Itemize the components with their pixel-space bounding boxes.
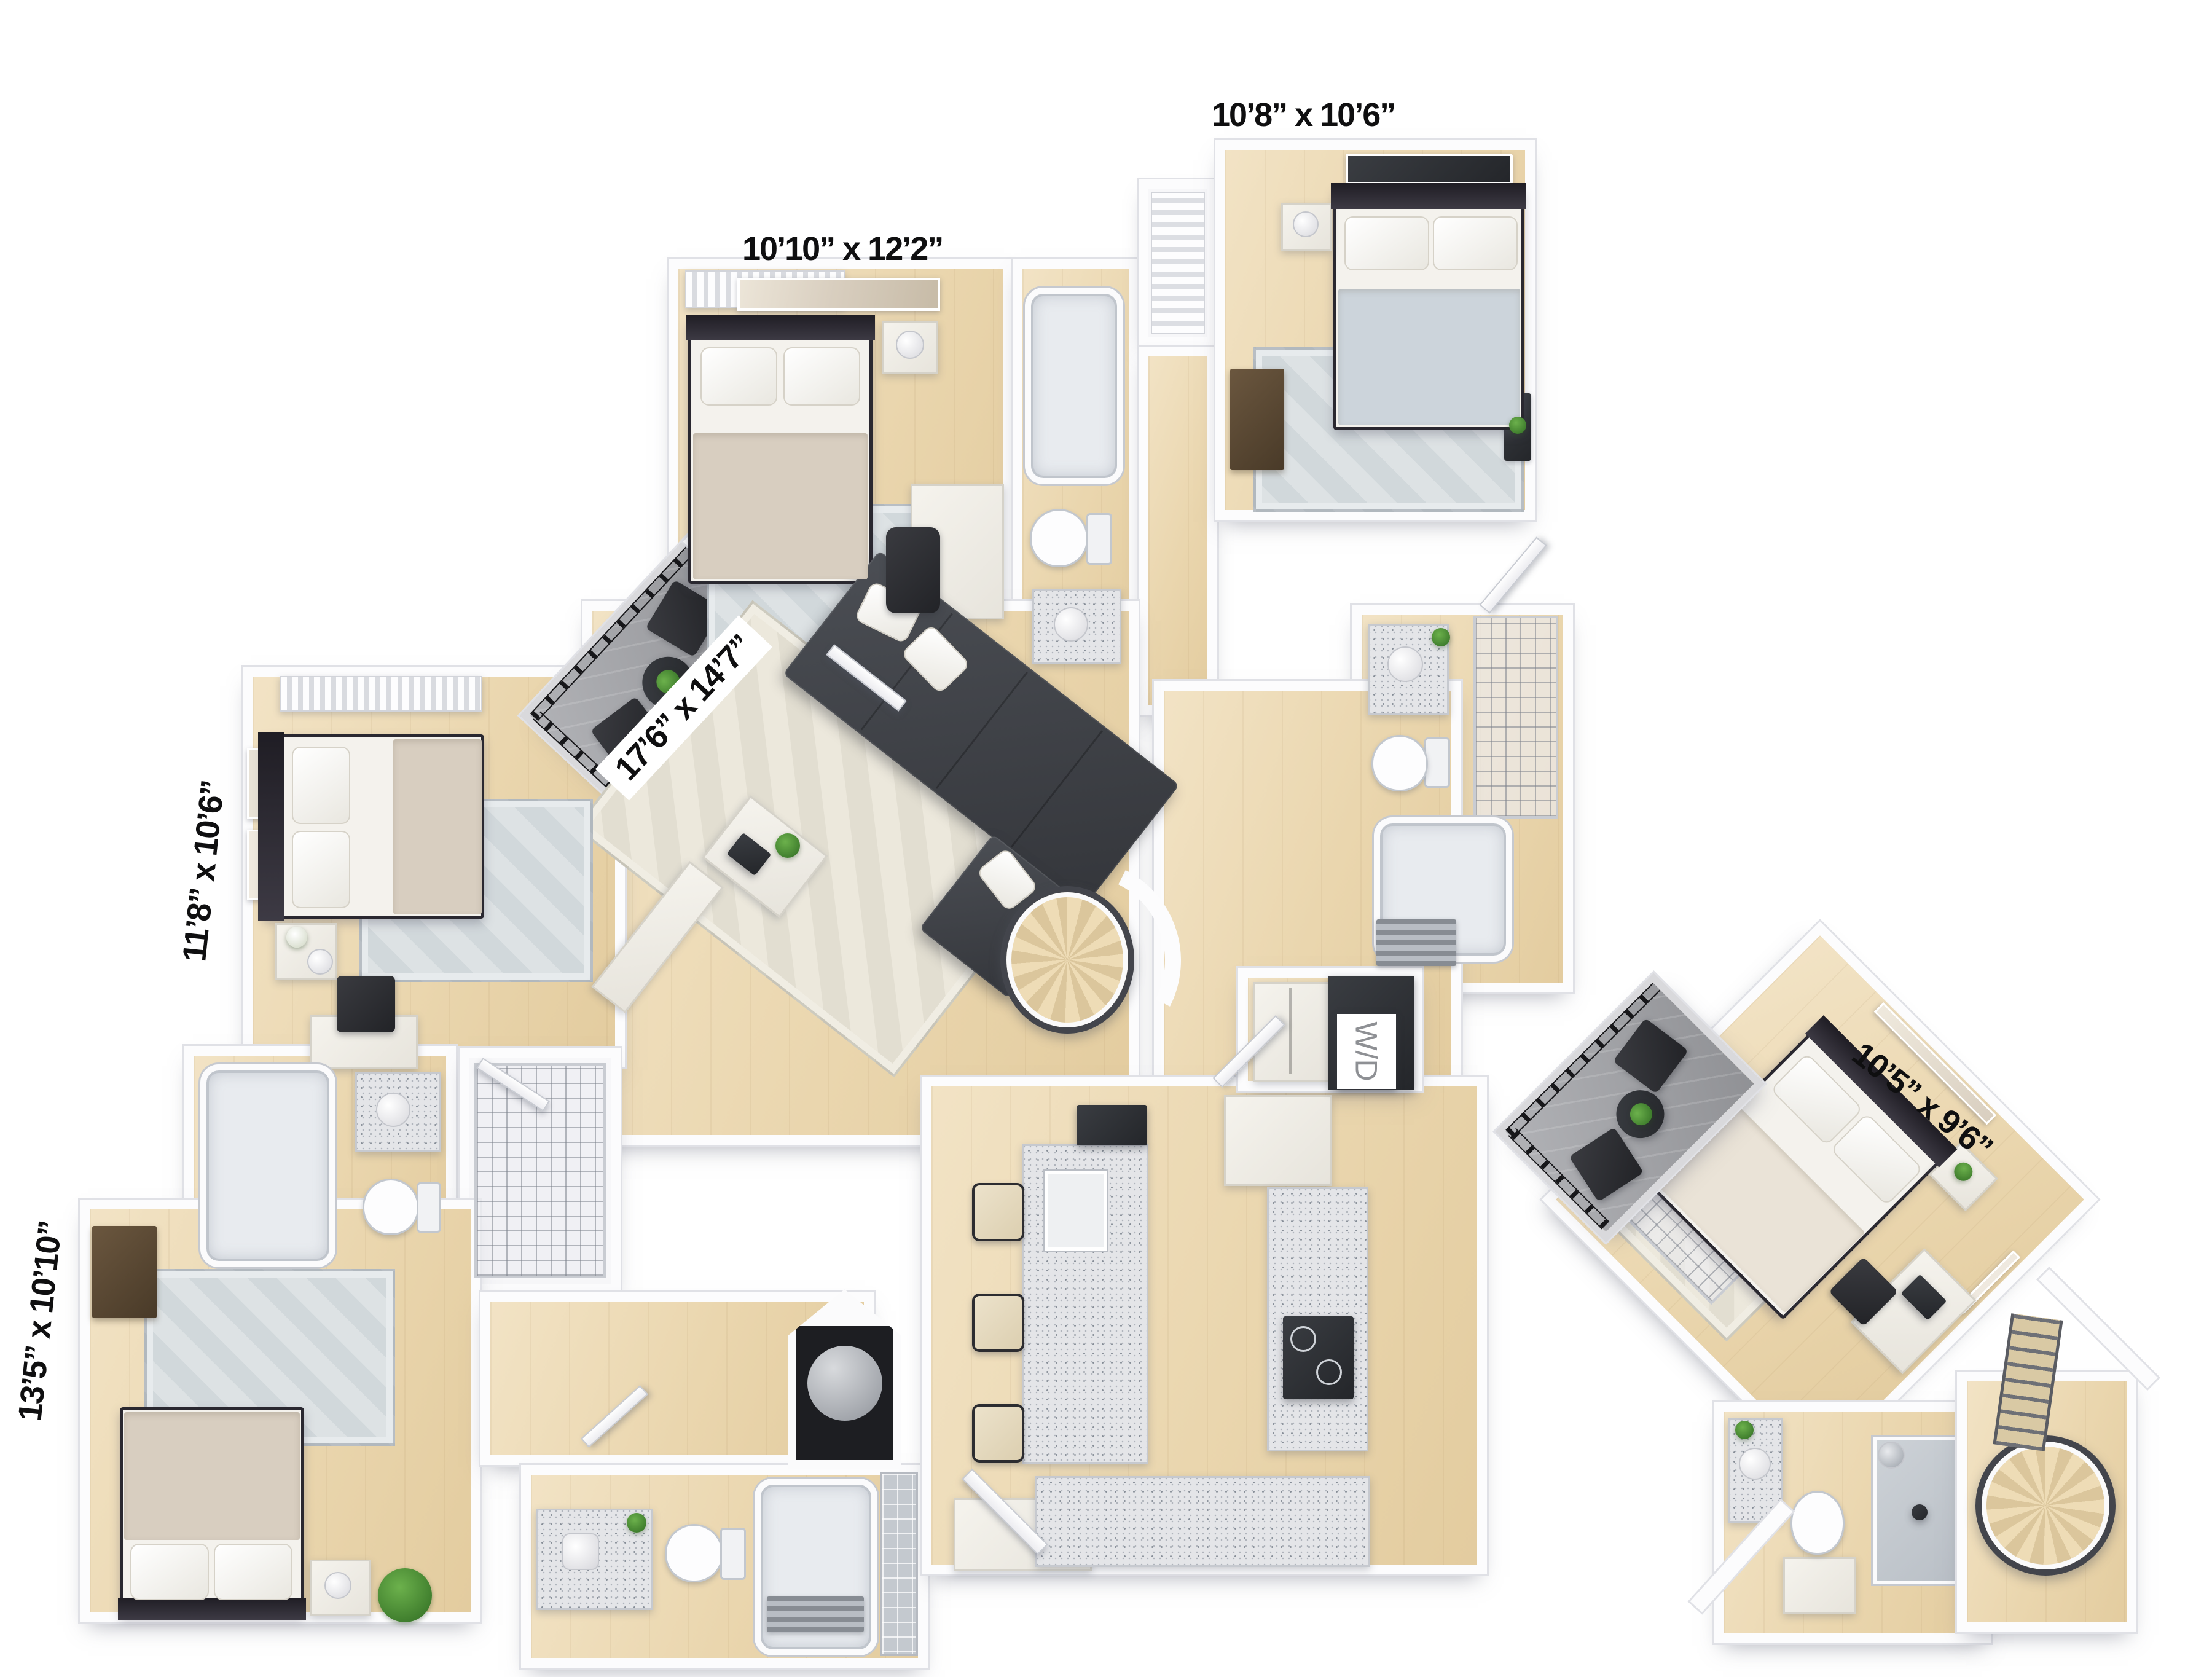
desk-chair-icon <box>886 527 940 613</box>
desk-chair-icon <box>337 976 395 1032</box>
wire-shelving-right <box>1473 616 1558 819</box>
bar-stool <box>972 1404 1024 1463</box>
floor-plan-scene: 10’8” x 10’6” 10’10” x 12’2” 17’6” x 14’… <box>0 0 2212 1677</box>
small-appliance-icon <box>1077 1105 1147 1145</box>
art-plant-icon <box>1509 417 1526 434</box>
stove-burner-icon <box>1316 1359 1342 1385</box>
headboard <box>686 315 875 340</box>
closet-sliding-doors <box>1151 192 1205 334</box>
bar-stool <box>972 1294 1024 1352</box>
wall-art-marble <box>737 278 940 311</box>
flowers-icon <box>286 927 307 948</box>
shower-head-icon <box>1878 1442 1905 1469</box>
label-bedroom-left: 11’8” x 10’6” <box>178 779 230 963</box>
lamp-icon <box>896 331 924 359</box>
label-bedroom-top-right: 10’8” x 10’6” <box>1212 98 1395 132</box>
pillow <box>1344 216 1429 270</box>
dresser <box>1230 369 1284 470</box>
island-sink <box>1045 1171 1107 1251</box>
upper-cabinet <box>1224 1095 1332 1186</box>
floor-plant-icon <box>378 1568 432 1622</box>
toilet-icon <box>665 1524 723 1582</box>
stove-icon <box>1283 1316 1354 1399</box>
lamp-icon <box>324 1572 351 1599</box>
shower-tile-wall <box>880 1472 918 1656</box>
room-bathroom-detached <box>1714 1402 1991 1643</box>
sink-icon <box>1387 646 1423 682</box>
label-bedroom-bottom-left: 13’5” x 10’10” <box>14 1220 68 1423</box>
toilet-tank <box>1086 513 1112 565</box>
lamp-icon <box>307 949 333 975</box>
toilet-icon <box>1371 735 1428 791</box>
pillow <box>292 831 350 908</box>
vanity-plant-icon <box>1432 628 1450 646</box>
towel-stack-icon <box>1376 919 1456 966</box>
pillow <box>783 347 860 406</box>
door-leaf <box>1479 536 1547 613</box>
pillow <box>292 747 350 824</box>
room-hall-top <box>1139 347 1217 715</box>
bar-stool <box>972 1183 1024 1241</box>
sink-icon <box>376 1093 410 1127</box>
toilet-icon <box>1790 1491 1845 1555</box>
kitchen-counter-bottom <box>1035 1476 1370 1567</box>
fridge-handle <box>1289 988 1292 1074</box>
blanket <box>693 433 868 579</box>
sink-icon <box>1739 1448 1771 1480</box>
pillow <box>700 347 777 406</box>
headboard <box>118 1598 306 1620</box>
window-blinds-icon <box>280 676 482 712</box>
toilet-cabinet <box>1783 1557 1856 1614</box>
vanity-plant-icon <box>1735 1421 1754 1439</box>
console-desk <box>92 1226 157 1318</box>
toilet-icon <box>1030 509 1088 567</box>
blanket <box>124 1412 300 1540</box>
toilet-tank <box>720 1528 746 1580</box>
vanity-plant-icon <box>627 1513 646 1533</box>
lamp-icon <box>1293 211 1319 237</box>
sink-icon <box>562 1533 599 1570</box>
spiral-staircase-living <box>1000 886 1134 1034</box>
headboard <box>258 732 284 921</box>
label-bedroom-top-middle: 10’10” x 12’2” <box>742 232 943 266</box>
bathtub-top <box>1025 288 1123 484</box>
patio-chair-icon <box>1569 1127 1644 1202</box>
bathtub-left <box>200 1064 335 1267</box>
headboard <box>1331 183 1526 209</box>
pillow <box>130 1544 209 1600</box>
coffee-table-plant-icon <box>775 833 800 858</box>
toilet-tank <box>1424 737 1450 788</box>
pillow <box>1433 216 1518 270</box>
water-heater-icon <box>807 1346 882 1421</box>
sink-icon <box>1054 607 1088 642</box>
blanket <box>393 739 482 914</box>
stove-burner-icon <box>1290 1326 1316 1352</box>
patio-chair-icon <box>1613 1018 1688 1094</box>
shower-drain-icon <box>1912 1504 1928 1520</box>
blanket <box>1338 289 1520 425</box>
towel-stack-icon <box>767 1596 864 1632</box>
wall-art-floral <box>1346 154 1513 184</box>
washer-dryer-label-card: W/D <box>1337 1014 1396 1089</box>
toilet-icon <box>363 1179 419 1235</box>
toilet-tank <box>417 1182 441 1233</box>
pillow <box>214 1544 292 1600</box>
washer-dryer-label: W/D <box>1349 1021 1384 1081</box>
spiral-staircase-detached <box>1975 1435 2116 1576</box>
